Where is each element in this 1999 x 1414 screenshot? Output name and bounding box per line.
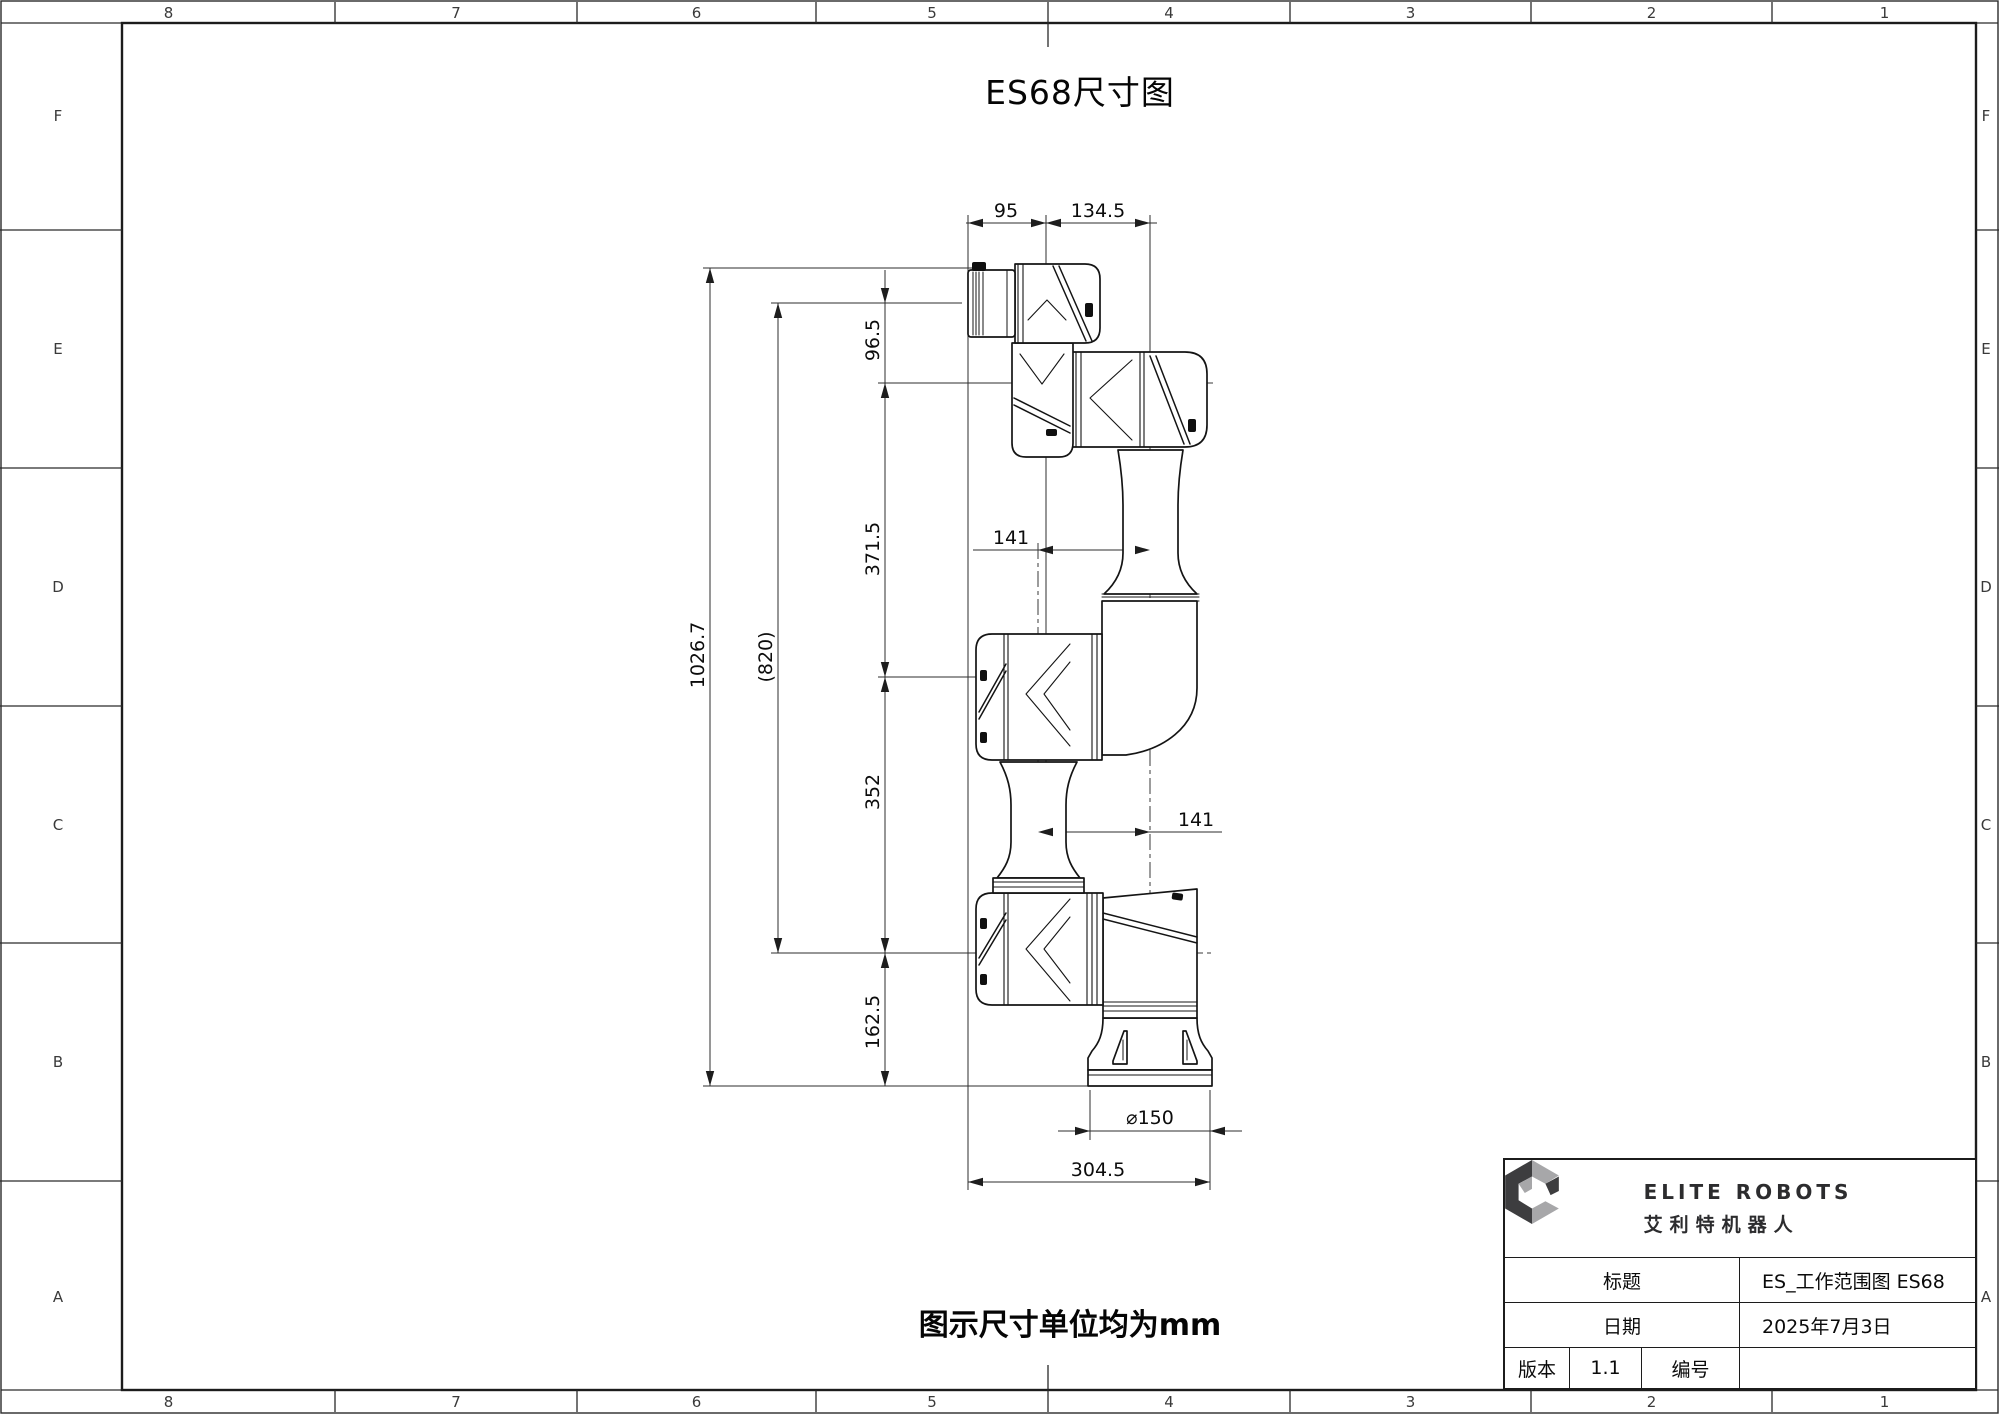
dim-dia-150: ⌀150 [1126, 1107, 1174, 1129]
dim-141-upper: 141 [993, 527, 1029, 549]
units-note: 图示尺寸单位均为mm [870, 1300, 1270, 1344]
title-block: ELITE ROBOTS 艾利特机器人 标题 ES_工作范围图 ES68 日期 … [1503, 1158, 1977, 1390]
zone-row-left-B: B [53, 1053, 63, 1071]
number-label-cell: 编号 [1642, 1348, 1740, 1388]
zone-row-right-A: A [1981, 1288, 1991, 1306]
logo-row: ELITE ROBOTS 艾利特机器人 [1505, 1160, 1975, 1258]
dimension-arrowhead [1195, 1178, 1210, 1186]
zone-col-bottom-4: 4 [1164, 1393, 1174, 1411]
dim-96-5: 96.5 [862, 319, 884, 361]
number-value-cell [1740, 1348, 1975, 1388]
dim-141-lower: 141 [1178, 809, 1214, 831]
date-label-cell: 日期 [1505, 1303, 1740, 1348]
dim-820: (820) [755, 631, 777, 682]
dim-352: 352 [862, 774, 884, 810]
tool-flange [968, 270, 1015, 337]
dimension-arrowhead [881, 383, 889, 398]
version-row: 版本 1.1 编号 [1505, 1348, 1975, 1388]
dimension-arrowhead [881, 288, 889, 303]
dimension-arrowhead [881, 677, 889, 692]
logo-text-cn: 艾利特机器人 [1644, 1210, 1853, 1237]
dimension-arrowhead [706, 268, 714, 283]
version-value-cell: 1.1 [1570, 1348, 1642, 1388]
dimension-arrowhead [881, 1071, 889, 1086]
zone-col-top-7: 7 [451, 4, 461, 22]
logo-text-en: ELITE ROBOTS [1644, 1180, 1853, 1204]
shoulder-joint [976, 893, 1103, 1005]
dimension-arrowhead [1135, 828, 1150, 836]
zone-row-right-F: F [1982, 107, 1991, 125]
title-row: 标题 ES_工作范围图 ES68 [1505, 1258, 1975, 1303]
elbow-joint [976, 634, 1102, 760]
zone-row-right-C: C [1981, 816, 1991, 834]
dimension-arrowhead [774, 938, 782, 953]
robot-arm-drawing [968, 262, 1212, 1086]
zone-col-top-6: 6 [692, 4, 702, 22]
zone-col-top-5: 5 [927, 4, 937, 22]
dimension-arrowhead [968, 219, 983, 227]
zone-row-left-A: A [53, 1288, 63, 1306]
zone-col-bottom-8: 8 [164, 1393, 174, 1411]
base-joint [1103, 889, 1197, 1018]
elbow-joint-arc [1102, 601, 1197, 755]
wrist-joint-2 [1012, 343, 1073, 457]
zone-col-top-8: 8 [164, 4, 174, 22]
base-plate [1088, 1070, 1212, 1086]
wrist-joint-1 [1055, 352, 1207, 447]
zone-col-bottom-3: 3 [1406, 1393, 1416, 1411]
dimension-arrowhead [1075, 1127, 1090, 1135]
zone-row-left-F: F [54, 107, 63, 125]
dimension-arrowhead [881, 953, 889, 968]
title-label-cell: 标题 [1505, 1258, 1740, 1303]
dimension-arrowhead [774, 303, 782, 318]
zone-col-bottom-5: 5 [927, 1393, 937, 1411]
dimension-arrowhead [706, 1071, 714, 1086]
drawing-sheet: 95 134.5 1026.7 (820) 96.5 371.5 352 162… [0, 0, 1999, 1414]
elite-robots-logo-icon [1505, 1160, 1559, 1224]
zone-row-left-E: E [53, 340, 62, 358]
zone-row-right-B: B [1981, 1053, 1991, 1071]
dimension-arrowhead [968, 1178, 983, 1186]
zone-row-right-D: D [1980, 578, 1992, 596]
zone-col-top-2: 2 [1647, 4, 1657, 22]
zone-col-bottom-2: 2 [1647, 1393, 1657, 1411]
dimension-arrowhead [1031, 219, 1046, 227]
dimension-arrowhead [1046, 219, 1061, 227]
dim-1026-7: 1026.7 [687, 622, 709, 688]
date-row: 日期 2025年7月3日 [1505, 1303, 1975, 1348]
zone-col-bottom-1: 1 [1880, 1393, 1890, 1411]
zone-col-top-3: 3 [1406, 4, 1416, 22]
dimension-arrowhead [881, 938, 889, 953]
dimension-arrowhead [1210, 1127, 1225, 1135]
dimension-arrowhead [1135, 219, 1150, 227]
sheet-title: ES68尺寸图 [880, 66, 1280, 114]
zone-row-left-D: D [52, 578, 64, 596]
dim-304-5: 304.5 [1071, 1159, 1125, 1181]
version-label-cell: 版本 [1505, 1348, 1570, 1388]
dimension-arrowhead [881, 662, 889, 677]
upper-arm [997, 762, 1080, 878]
zone-row-left-C: C [53, 816, 63, 834]
title-value-cell: ES_工作范围图 ES68 [1740, 1258, 1975, 1303]
zone-col-bottom-6: 6 [692, 1393, 702, 1411]
zone-row-right-E: E [1981, 340, 1990, 358]
dim-134-5: 134.5 [1071, 200, 1125, 222]
dim-162-5: 162.5 [862, 995, 884, 1049]
dim-95: 95 [994, 200, 1018, 222]
date-value-cell: 2025年7月3日 [1740, 1303, 1975, 1348]
zone-col-top-1: 1 [1880, 4, 1890, 22]
forearm [1104, 450, 1197, 594]
dim-371-5: 371.5 [862, 522, 884, 576]
zone-col-top-4: 4 [1164, 4, 1174, 22]
zone-col-bottom-7: 7 [451, 1393, 461, 1411]
